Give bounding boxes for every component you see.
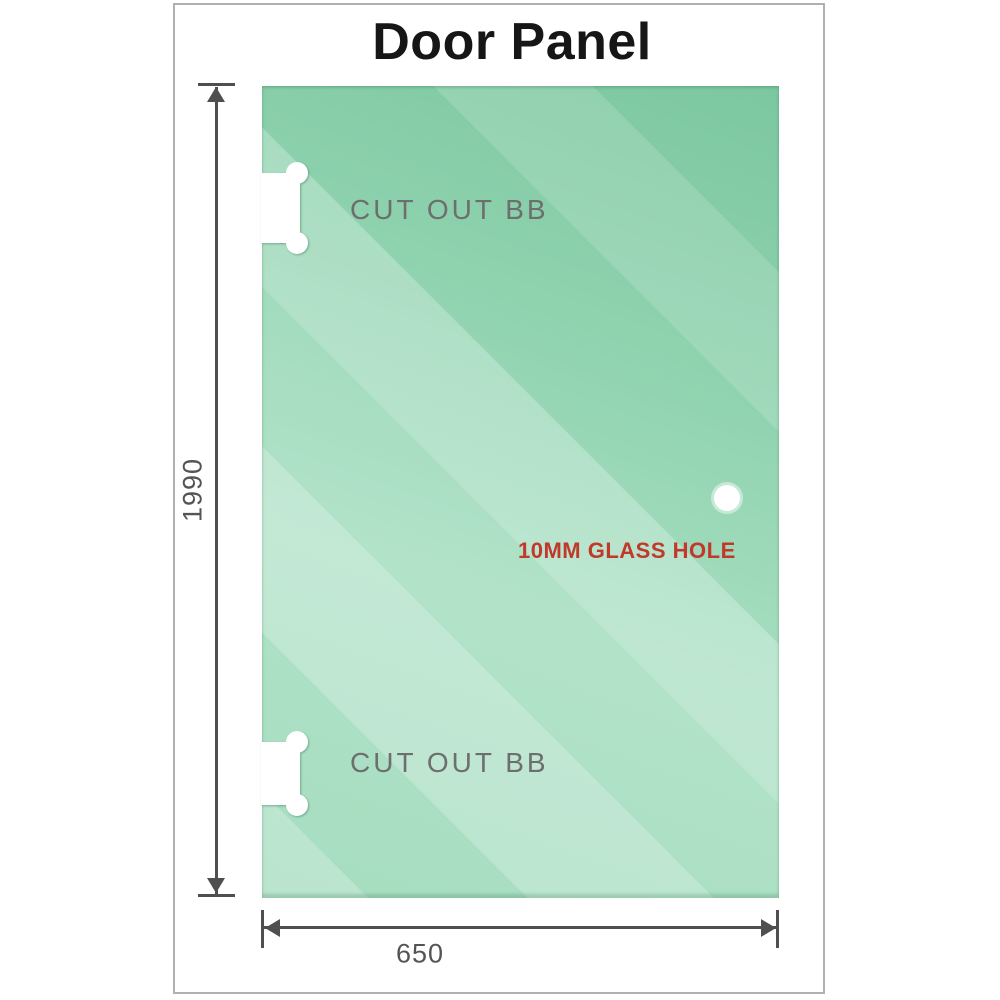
cutout-bottom-label: CUT OUT BB	[350, 747, 549, 779]
dimension-end-tick	[776, 910, 779, 948]
hinge-cutout-bottom	[261, 731, 311, 819]
dimension-line-vertical	[215, 87, 218, 894]
dimension-end-tick	[198, 894, 235, 897]
diagram-canvas: Door Panel CUT OUT BB CUT OUT BB 10MM GL…	[0, 0, 1000, 1000]
arrow-down-icon	[207, 878, 225, 893]
height-dimension-value: 1990	[178, 458, 209, 522]
cutout-top-label: CUT OUT BB	[350, 194, 549, 226]
arrow-right-icon	[761, 919, 776, 937]
dimension-end-tick	[261, 910, 264, 948]
page-title: Door Panel	[372, 12, 652, 72]
cutout-bump-bottom	[286, 794, 308, 816]
glass-hole-label: 10MM GLASS HOLE	[518, 538, 736, 564]
dimension-line-horizontal	[264, 926, 777, 929]
cutout-bump-bottom	[286, 232, 308, 254]
hinge-cutout-top	[261, 162, 311, 254]
glass-panel: CUT OUT BB CUT OUT BB 10MM GLASS HOLE	[262, 86, 779, 898]
cutout-bump-top	[286, 162, 308, 184]
glass-hole	[714, 485, 740, 511]
width-dimension-value: 650	[396, 939, 444, 970]
cutout-bump-top	[286, 731, 308, 753]
dimension-end-tick	[198, 83, 235, 86]
